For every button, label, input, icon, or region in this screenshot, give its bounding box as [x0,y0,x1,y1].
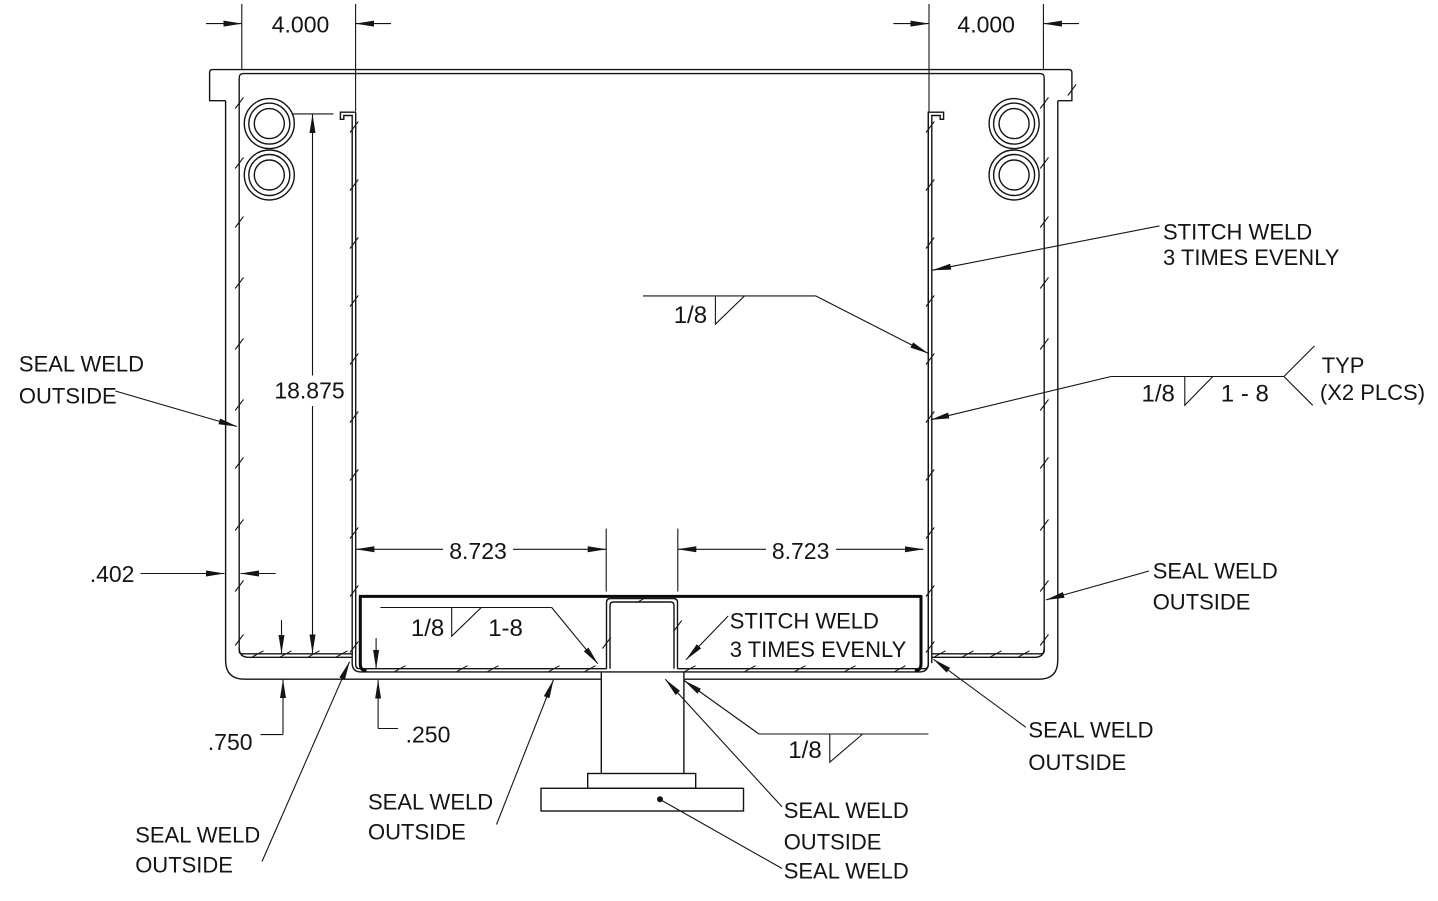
svg-text:.402: .402 [90,561,135,587]
svg-text:4.000: 4.000 [272,12,330,38]
svg-text:SEAL WELD: SEAL WELD [784,798,909,823]
svg-text:SEAL WELD: SEAL WELD [784,859,909,884]
svg-text:18.875: 18.875 [274,378,344,404]
svg-text:SEAL WELD: SEAL WELD [19,351,144,376]
svg-text:1/8: 1/8 [788,737,821,764]
svg-text:OUTSIDE: OUTSIDE [1153,589,1251,614]
svg-text:OUTSIDE: OUTSIDE [1028,750,1126,775]
svg-text:SEAL WELD: SEAL WELD [1153,559,1278,584]
svg-text:STITCH WELD: STITCH WELD [1163,220,1312,245]
svg-text:1 - 8: 1 - 8 [1221,381,1269,408]
svg-text:SEAL WELD: SEAL WELD [368,790,493,815]
svg-text:OUTSIDE: OUTSIDE [19,383,117,408]
svg-text:1/8: 1/8 [411,615,444,642]
svg-text:OUTSIDE: OUTSIDE [135,853,233,878]
svg-text:3 TIMES EVENLY: 3 TIMES EVENLY [1163,245,1340,270]
svg-text:OUTSIDE: OUTSIDE [368,820,466,845]
svg-text:3 TIMES EVENLY: 3 TIMES EVENLY [730,637,907,662]
svg-text:(X2 PLCS): (X2 PLCS) [1320,380,1425,405]
svg-text:STITCH WELD: STITCH WELD [730,608,879,633]
svg-text:SEAL WELD: SEAL WELD [135,823,260,848]
svg-text:OUTSIDE: OUTSIDE [784,830,882,855]
svg-text:1/8: 1/8 [1142,381,1175,408]
svg-text:TYP: TYP [1322,353,1365,378]
svg-text:.250: .250 [406,722,451,748]
svg-text:.750: .750 [208,729,253,755]
svg-text:8.723: 8.723 [449,538,507,564]
svg-text:4.000: 4.000 [957,12,1015,38]
svg-text:1/8: 1/8 [674,302,707,329]
svg-text:8.723: 8.723 [772,538,830,564]
svg-text:1-8: 1-8 [488,615,523,642]
svg-text:SEAL WELD: SEAL WELD [1028,718,1153,743]
